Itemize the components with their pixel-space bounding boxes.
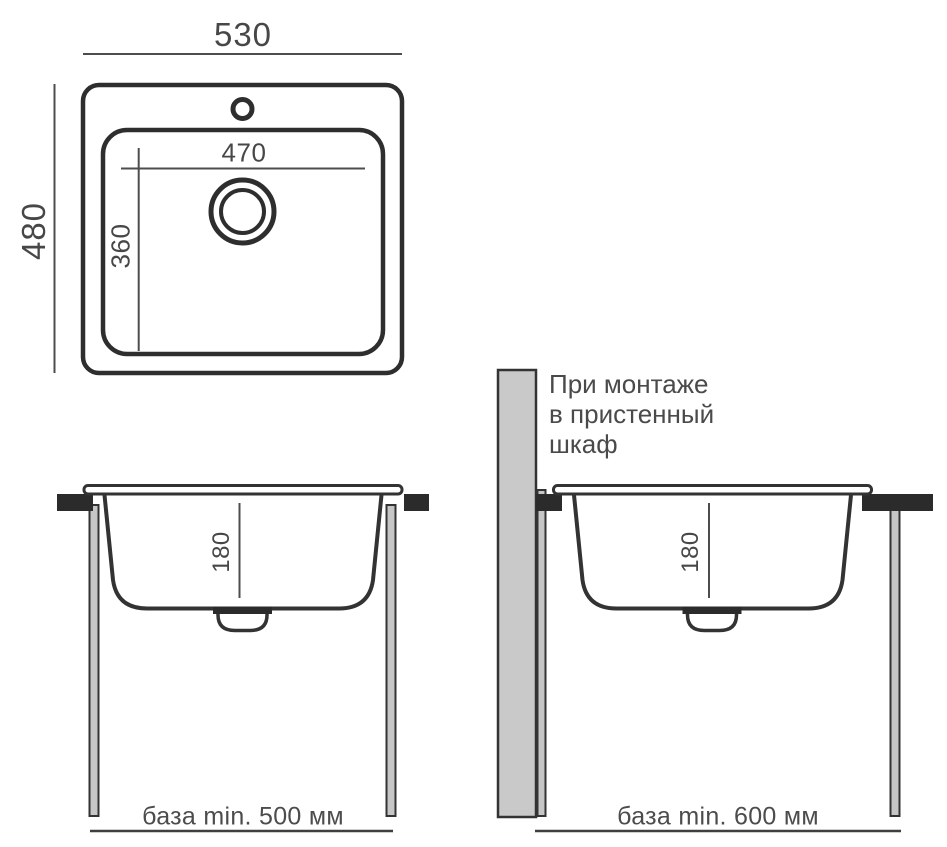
wall-mount-note-line2: в пристенный bbox=[549, 399, 714, 429]
cabinet-leg-right bbox=[387, 505, 396, 816]
dim-label-360: 360 bbox=[106, 224, 137, 269]
faucet-hole bbox=[233, 100, 252, 119]
drain-inner-circle bbox=[221, 190, 264, 233]
wall-mount-note: При монтаже в пристенный шкаф bbox=[549, 369, 714, 459]
drawing-canvas bbox=[0, 0, 947, 847]
bowl-profile bbox=[574, 490, 852, 609]
drain-flange bbox=[213, 607, 272, 615]
wall-mount-note-line1: При монтаже bbox=[549, 369, 714, 399]
dim-label-530: 530 bbox=[214, 16, 272, 54]
wall-mount-note-line3: шкаф bbox=[549, 429, 714, 459]
side-view-left bbox=[57, 486, 429, 832]
dim-label-180-left: 180 bbox=[208, 531, 236, 573]
countertop-left bbox=[57, 494, 93, 511]
sink-rim bbox=[554, 486, 872, 495]
bowl-profile bbox=[104, 490, 382, 609]
countertop-left bbox=[536, 494, 562, 511]
dim-label-180-right: 180 bbox=[677, 531, 705, 573]
countertop-right bbox=[404, 494, 429, 511]
wall-panel bbox=[498, 370, 536, 817]
top-view bbox=[55, 54, 403, 373]
dim-label-470: 470 bbox=[222, 138, 267, 169]
dim-label-480: 480 bbox=[15, 202, 53, 260]
countertop-right bbox=[862, 494, 933, 511]
cabinet-leg-left bbox=[90, 505, 99, 816]
base-label-500: база min. 500 мм bbox=[142, 803, 344, 832]
cabinet-leg-right bbox=[891, 505, 900, 816]
cabinet-leg-left bbox=[538, 490, 546, 816]
sink-rim bbox=[84, 486, 402, 495]
base-label-600: база min. 600 мм bbox=[617, 803, 819, 832]
sink-dimension-drawing: 530 480 470 360 180 180 база min. 500 мм… bbox=[0, 0, 947, 847]
drain-flange bbox=[683, 607, 742, 615]
